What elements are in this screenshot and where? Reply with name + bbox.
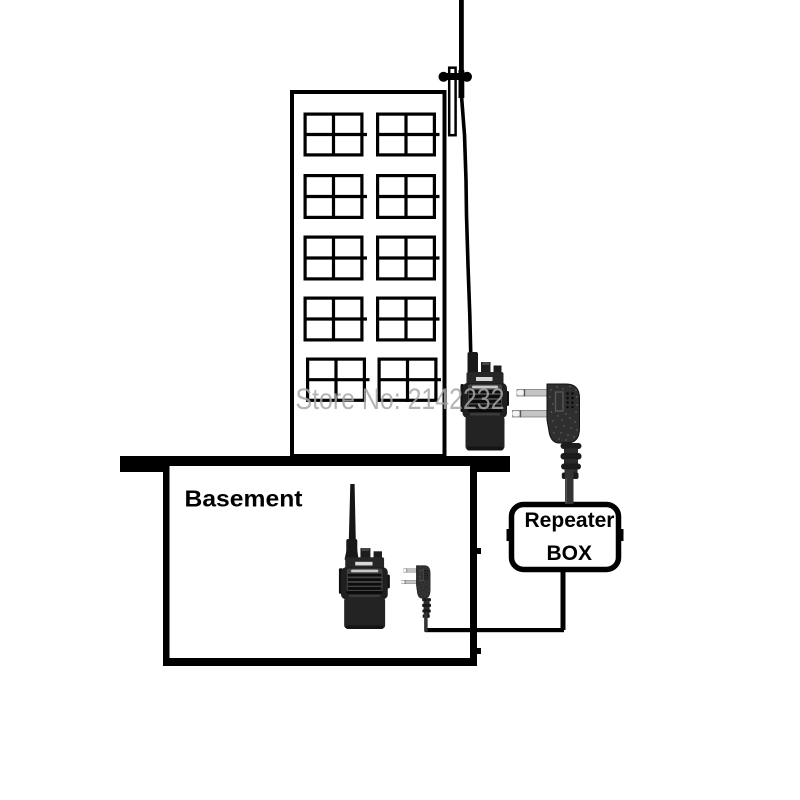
svg-text:Repeater: Repeater xyxy=(525,509,615,532)
svg-text:Basement: Basement xyxy=(185,486,303,512)
svg-text:Store No: 2142232: Store No: 2142232 xyxy=(296,383,505,416)
svg-text:BOX: BOX xyxy=(547,542,593,565)
